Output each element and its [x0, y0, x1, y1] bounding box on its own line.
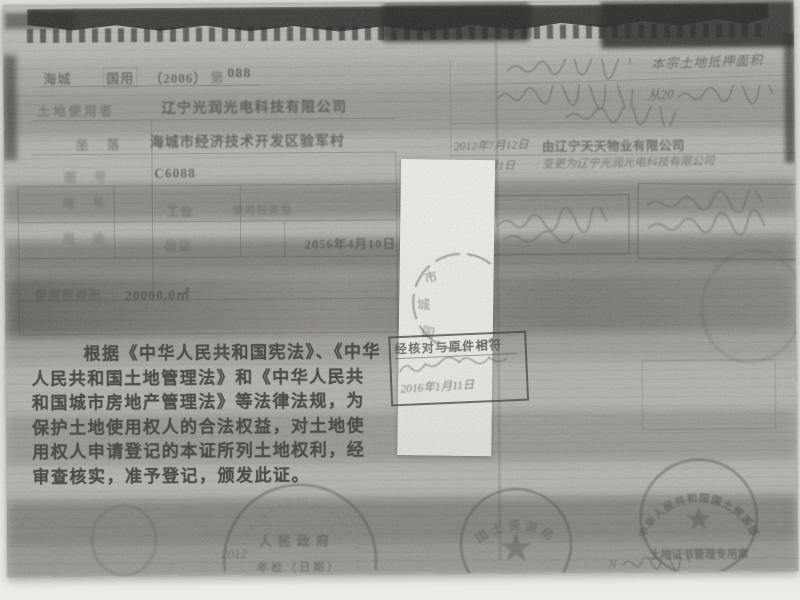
cert-no-year: （2006）	[149, 68, 207, 87]
field-label-map-no: 图 号	[64, 168, 109, 185]
stamp-char: 市	[423, 269, 439, 287]
star-icon: ★	[498, 525, 534, 570]
annual-check-label: 年检（日期）	[257, 558, 341, 575]
change-record-line2: 变更为辽宁光润光电科技有限公司	[542, 153, 715, 172]
field-label-usage: 用 途	[63, 229, 108, 246]
legal-line: 人民共和国土地管理法》和《中华人民共	[32, 364, 402, 391]
top-toner-blob	[5, 13, 75, 30]
field-label-land-no: 地 号	[62, 194, 107, 211]
ministry-land-stamp: 中华人民共和国国土资源部 ★ 土地证书管理专用章	[626, 457, 777, 572]
star-icon: ★	[684, 501, 713, 537]
top-toner-blob	[601, 1, 794, 49]
field-value-end-date: 2056年4月10日	[305, 233, 396, 253]
field-value-location: 海城市经济技术开发区验军村	[150, 130, 345, 152]
legal-paragraph: 根据《中华人民共和国宪法》、《中华 人民共和国土地管理法》和《中华人民共 和国城…	[31, 340, 402, 490]
stamp-char: 城	[417, 297, 430, 312]
change-record-date: 2012年7月12日	[454, 136, 529, 154]
annual-check-year-handwritten: 2012	[221, 546, 247, 562]
small-corner-stamp	[91, 504, 158, 577]
legal-line: 用权人申请登记的本证所列土地权利，经	[32, 438, 402, 465]
mortgage-note-handwritten: 本宗土地抵押面积	[651, 50, 764, 73]
mortgage-fragment-handwritten: 从20	[647, 83, 674, 103]
faint-record-frame	[642, 359, 777, 430]
cert-no-region: 海城	[43, 69, 71, 88]
top-toner-blob	[381, 3, 531, 42]
change-record-line1: 由辽宁天天物业有限公司	[542, 135, 685, 155]
field-value-usage: 工业	[166, 201, 193, 220]
signature-scribble	[397, 353, 518, 380]
field-value-land-user: 辽宁光润光电科技有限公司	[161, 96, 347, 117]
verification-stamp: 经核对与原件相符 2016年1月11日	[388, 331, 529, 407]
field-value-area: 20000.0㎡	[125, 284, 191, 305]
stamp-serial-prefix: N	[608, 556, 617, 572]
handwriting-scribble	[493, 207, 623, 248]
record-box	[637, 183, 798, 260]
handwriting-scribble	[505, 58, 645, 81]
field-label-location: 坐 落	[76, 134, 123, 153]
handwriting-scribble	[642, 190, 792, 249]
field-value-map-no: C6088	[154, 166, 196, 182]
legal-line: 根据《中华人民共和国宪法》、《中华	[31, 340, 401, 367]
field-label-land-user: 土地使用者	[38, 100, 116, 120]
field-value-right-type: 出让	[165, 235, 192, 254]
land-bureau-stamp: 国土资源局 ★	[452, 483, 589, 574]
legal-line: 和国城市房地产管理法》等法律法规，为	[32, 389, 402, 416]
cert-no-number: 088	[227, 66, 251, 82]
field-label-area: 使用权面积	[35, 286, 103, 303]
serial-number-scribble	[621, 556, 701, 571]
document-scan: 海城 国用 （2006） 第 088 土地使用者 辽宁光润光电科技有限公司 坐 …	[3, 0, 798, 577]
field-label-right-type: 使用权类型	[232, 202, 292, 218]
gov-stamp-text: 人民政府	[259, 531, 335, 551]
handwriting-scribble	[564, 106, 694, 127]
legal-line: 保护土地使用权人的合法权益，对土地使	[32, 413, 402, 440]
photo-of-document: 海城 国用 （2006） 第 088 土地使用者 辽宁光润光电科技有限公司 坐 …	[0, 0, 800, 600]
cert-no-prefix: 第	[210, 67, 224, 86]
verification-date-handwritten: 2016年1月11日	[400, 376, 475, 396]
white-paper-slip: 市 城 国	[397, 159, 495, 456]
record-box	[487, 194, 629, 255]
handwriting-scribble	[675, 85, 795, 106]
cert-no-type: 国用	[103, 67, 137, 88]
